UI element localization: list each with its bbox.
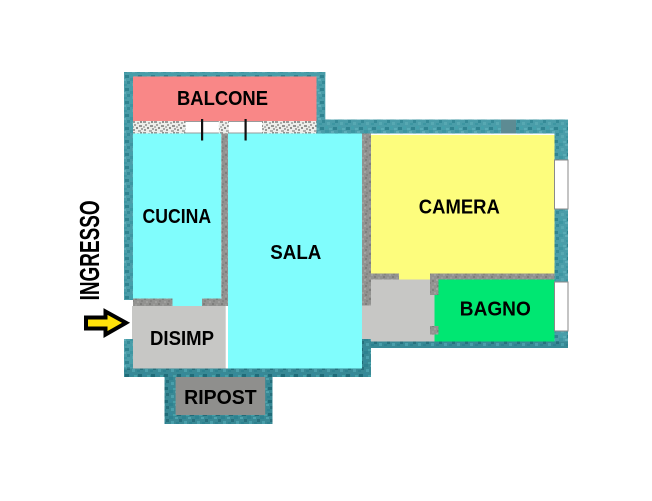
svg-text:RIPOST: RIPOST (184, 387, 257, 409)
svg-text:DISIMP: DISIMP (150, 328, 214, 350)
svg-text:INGRESSO: INGRESSO (74, 200, 105, 300)
svg-text:SALA: SALA (270, 242, 321, 264)
svg-text:CUCINA: CUCINA (143, 206, 212, 228)
svg-text:BAGNO: BAGNO (460, 299, 531, 321)
svg-text:CAMERA: CAMERA (419, 197, 500, 219)
svg-text:BALCONE: BALCONE (177, 88, 268, 110)
